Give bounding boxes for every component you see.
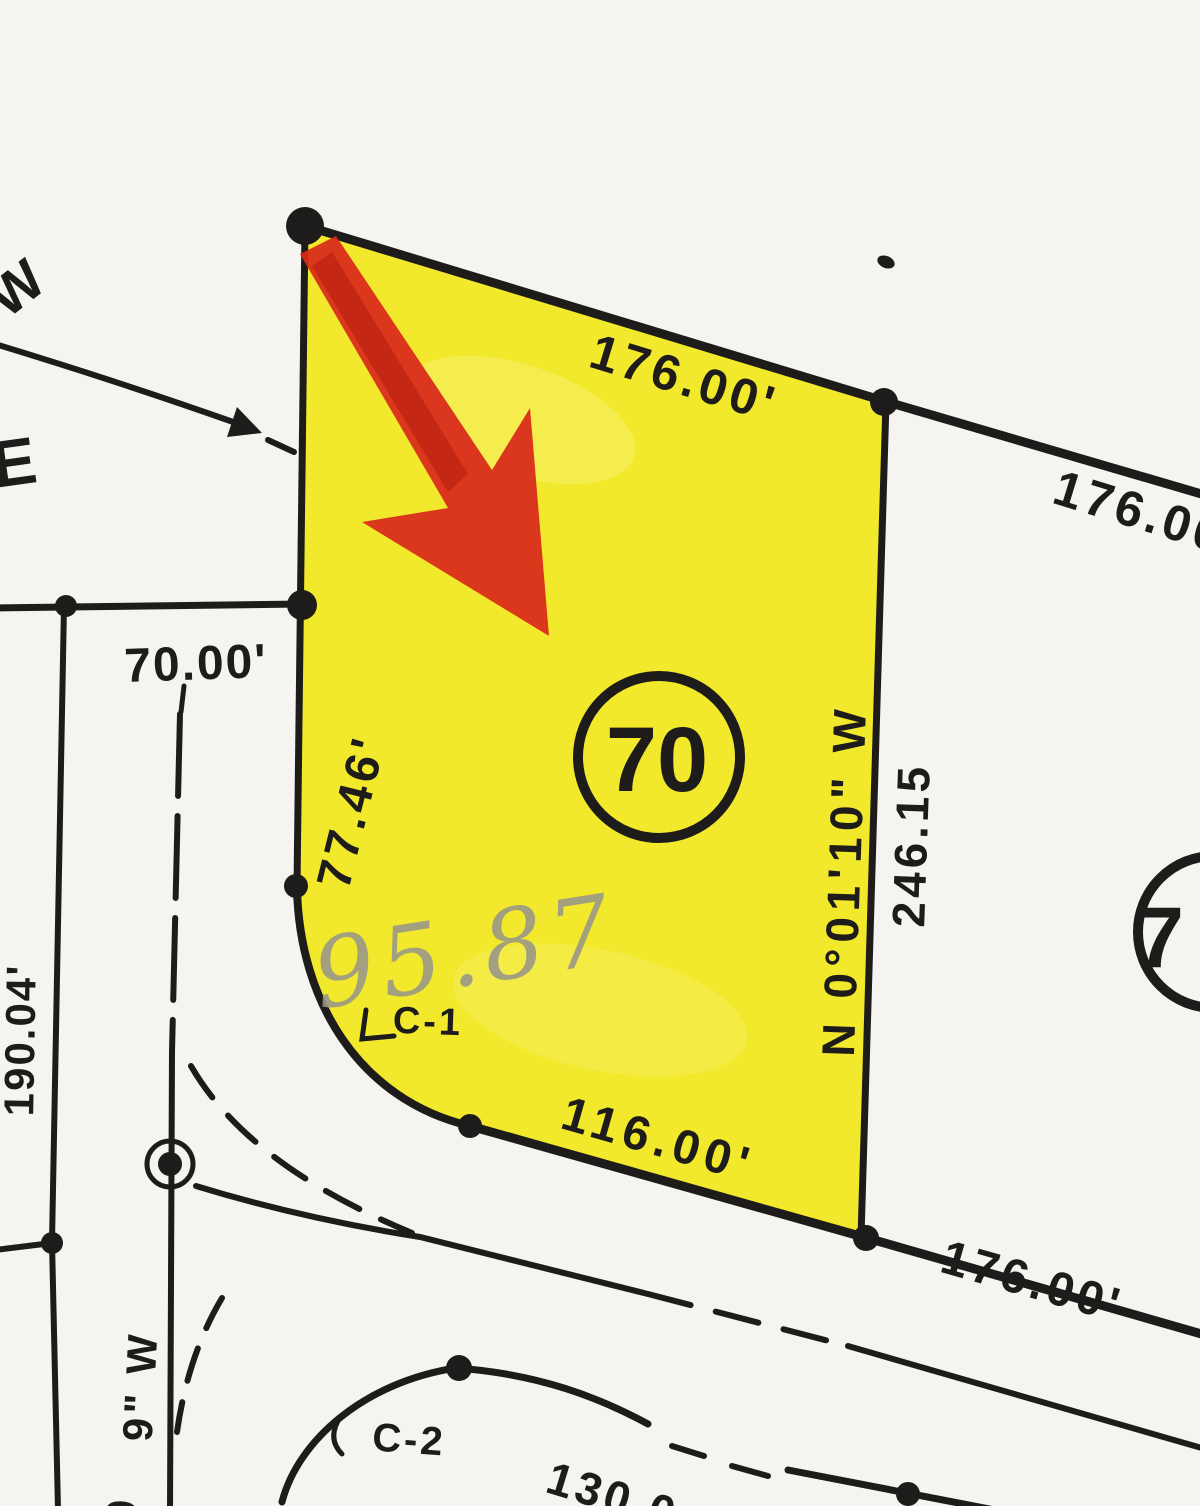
lot-70-number: 70 bbox=[606, 709, 708, 811]
monument-inner-dot bbox=[158, 1152, 182, 1176]
survey-point bbox=[286, 207, 324, 245]
survey-point bbox=[446, 1355, 472, 1381]
neighbor-lot-number: 7 bbox=[1136, 890, 1184, 986]
plat-map-canvas: 70 7 176.00' 176.00 77.46' N 0°01'10" W … bbox=[0, 0, 1200, 1506]
west-block-lot-line bbox=[0, 604, 303, 608]
survey-point bbox=[55, 595, 77, 617]
dim-west-block-70: 70.00' bbox=[123, 635, 268, 693]
dim-west-block-190-04: 190.04' bbox=[0, 963, 45, 1116]
plat-map-scan: 70 7 176.00' 176.00 77.46' N 0°01'10" W … bbox=[0, 0, 1200, 1506]
survey-point bbox=[853, 1225, 879, 1251]
survey-point bbox=[41, 1232, 63, 1254]
survey-point bbox=[870, 388, 898, 416]
survey-point bbox=[287, 590, 317, 620]
bearing-partial-9w: 9" W bbox=[114, 1330, 167, 1443]
survey-point bbox=[458, 1114, 482, 1138]
curve-label-c2: C-2 bbox=[371, 1415, 447, 1464]
survey-point bbox=[284, 874, 308, 898]
monument-line bbox=[170, 1052, 172, 1506]
dim-east-246-15: 246.15 bbox=[882, 762, 940, 928]
survey-point bbox=[896, 1482, 920, 1506]
